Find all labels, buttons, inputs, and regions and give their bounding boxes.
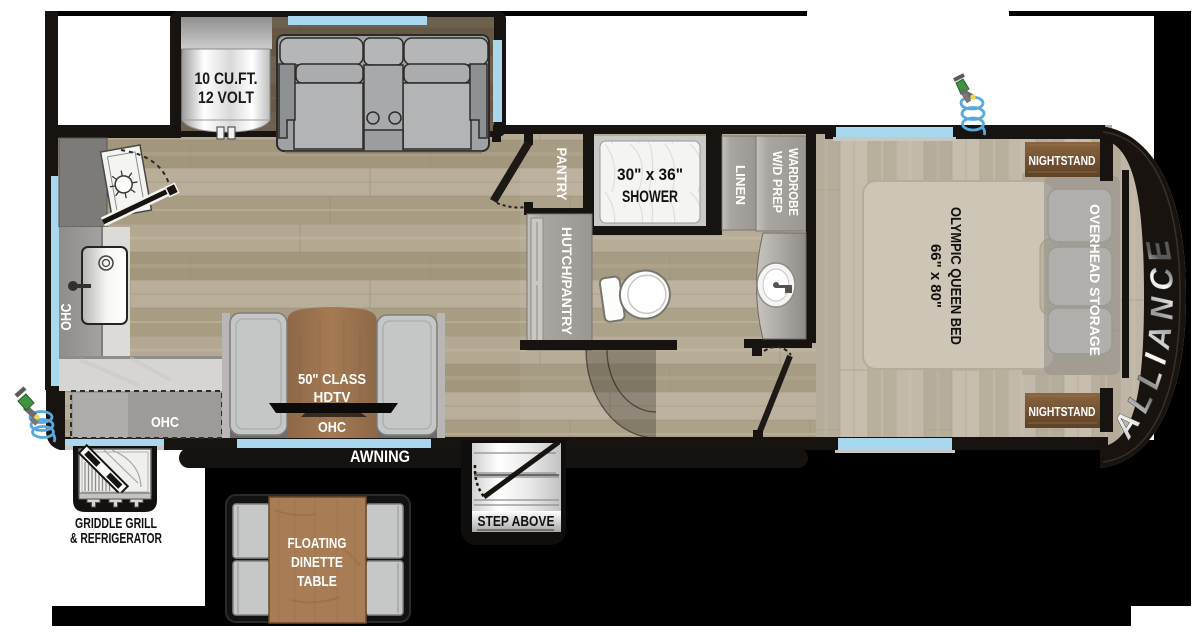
svg-text:OLYMPIC QUEEN BED: OLYMPIC QUEEN BED bbox=[947, 207, 964, 345]
svg-text:OHC: OHC bbox=[151, 414, 179, 431]
svg-text:OHC: OHC bbox=[58, 303, 75, 330]
svg-text:30" x 36": 30" x 36" bbox=[617, 166, 683, 184]
svg-text:DINETTE: DINETTE bbox=[291, 554, 343, 571]
svg-text:OVERHEAD STORAGE: OVERHEAD STORAGE bbox=[1087, 204, 1102, 356]
svg-text:AWNING: AWNING bbox=[350, 448, 410, 466]
svg-text:50" CLASS: 50" CLASS bbox=[298, 371, 366, 388]
svg-text:LINEN: LINEN bbox=[733, 165, 748, 205]
svg-text:& REFRIGERATOR: & REFRIGERATOR bbox=[70, 530, 162, 547]
svg-text:10 CU.FT.: 10 CU.FT. bbox=[195, 69, 258, 88]
svg-text:WARDROBE: WARDROBE bbox=[786, 148, 801, 216]
svg-text:TABLE: TABLE bbox=[297, 573, 337, 590]
svg-text:STEP ABOVE: STEP ABOVE bbox=[478, 514, 555, 530]
svg-text:NIGHTSTAND: NIGHTSTAND bbox=[1029, 154, 1096, 168]
svg-text:FLOATING: FLOATING bbox=[288, 535, 347, 552]
svg-text:12 VOLT: 12 VOLT bbox=[198, 88, 255, 107]
svg-text:W/D PREP: W/D PREP bbox=[770, 151, 785, 213]
svg-text:SHOWER: SHOWER bbox=[622, 188, 678, 206]
svg-text:66" x 80": 66" x 80" bbox=[927, 244, 944, 308]
svg-text:NIGHTSTAND: NIGHTSTAND bbox=[1029, 405, 1096, 419]
svg-text:HUTCH/PANTRY: HUTCH/PANTRY bbox=[559, 227, 574, 335]
svg-text:PANTRY: PANTRY bbox=[554, 148, 570, 202]
svg-text:OHC: OHC bbox=[318, 419, 346, 436]
